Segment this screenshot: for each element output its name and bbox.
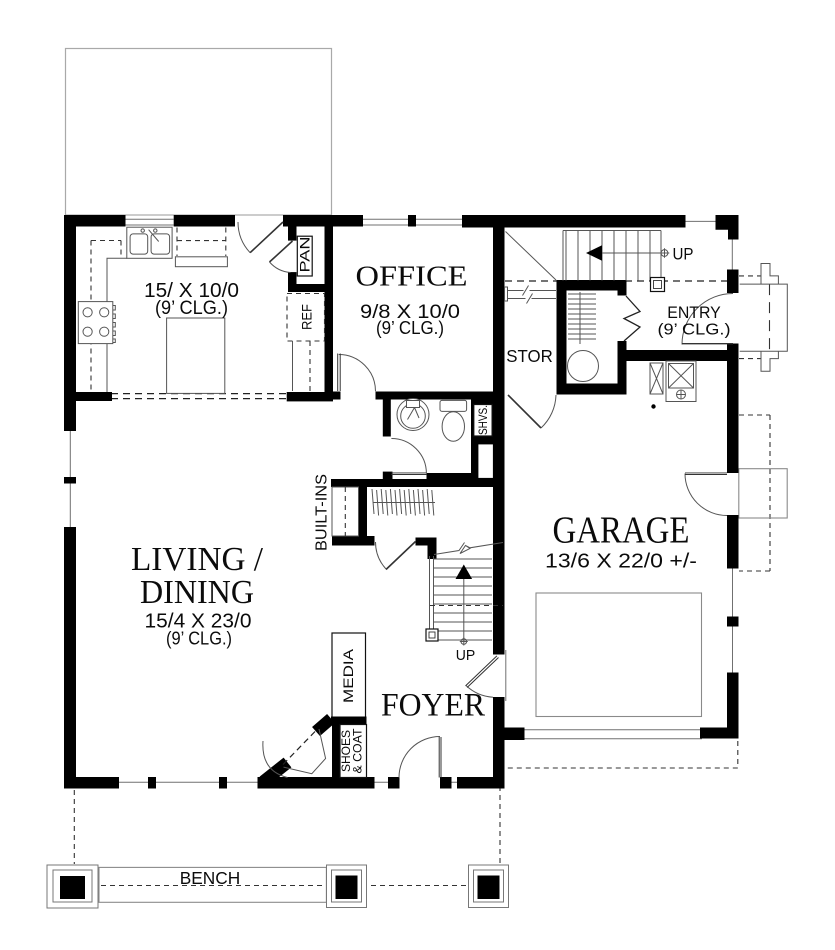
- svg-text:PAN: PAN: [298, 237, 313, 273]
- svg-text:ENTRY: ENTRY: [667, 303, 721, 322]
- svg-text:SHVS.: SHVS.: [478, 405, 490, 435]
- svg-text:STOR: STOR: [506, 346, 553, 366]
- svg-text:SHOES: SHOES: [341, 730, 353, 772]
- svg-text:UP: UP: [673, 245, 694, 264]
- svg-text:DINING: DINING: [140, 574, 254, 611]
- svg-text:REF: REF: [300, 304, 315, 330]
- svg-text:(9’ CLG.): (9’ CLG.): [658, 322, 731, 339]
- svg-text:(9’ CLG.): (9’ CLG.): [155, 298, 228, 319]
- svg-text:UP: UP: [456, 647, 476, 664]
- svg-text:BENCH: BENCH: [180, 868, 241, 888]
- svg-text:GARAGE: GARAGE: [553, 510, 690, 552]
- svg-text:& COAT: & COAT: [353, 729, 365, 774]
- svg-text:MEDIA: MEDIA: [340, 648, 356, 703]
- svg-text:(9’ CLG.): (9’ CLG.): [166, 629, 232, 649]
- svg-text:OFFICE: OFFICE: [356, 261, 468, 293]
- svg-text:(9’ CLG.): (9’ CLG.): [376, 318, 444, 338]
- svg-text:LIVING /: LIVING /: [131, 541, 264, 578]
- svg-text:13/6 X 22/0 +/-: 13/6 X 22/0 +/-: [545, 551, 697, 573]
- svg-text:FOYER: FOYER: [381, 688, 485, 724]
- svg-text:BUILT-INS: BUILT-INS: [314, 474, 331, 551]
